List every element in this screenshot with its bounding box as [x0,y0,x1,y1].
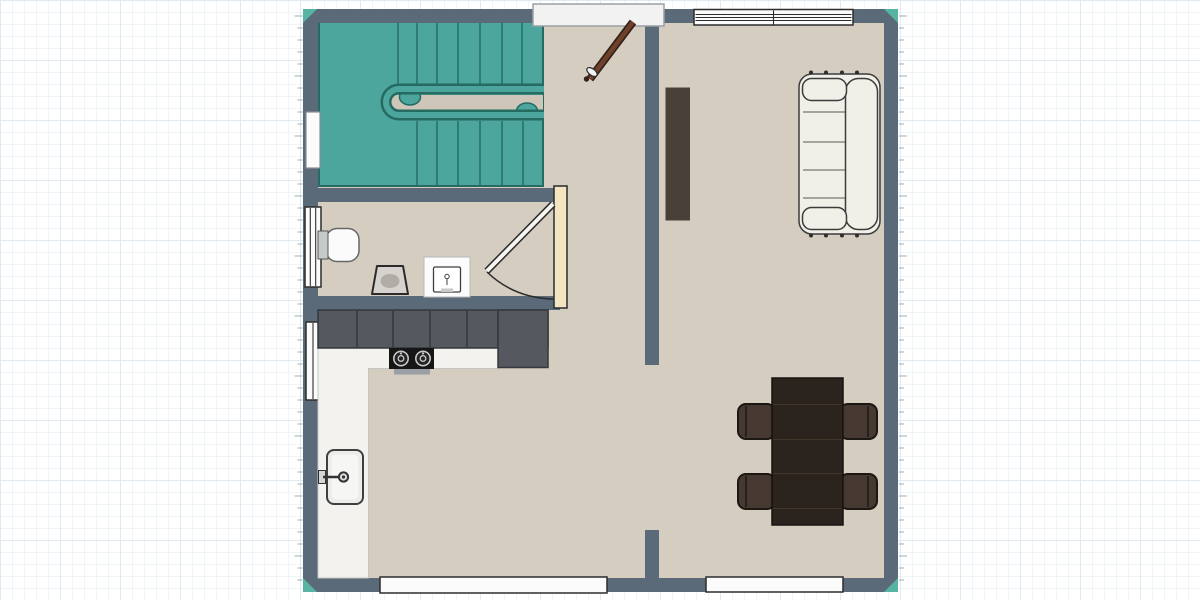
bottom-left-window[interactable] [380,577,607,593]
dining-chair[interactable] [840,404,877,439]
sofa-backrest [846,79,878,230]
floorplan-canvas [0,0,1200,600]
sofa-foot [824,71,828,75]
sofa-foot [809,71,813,75]
sofa-armrest-top [803,79,847,101]
sofa-foot [855,234,859,238]
sofa-foot [809,234,813,238]
sofa-armrest-bottom [803,208,847,230]
burner-knob [422,352,424,354]
cooktop[interactable] [389,348,434,375]
toilet-tank [318,231,328,259]
washbasin-label [441,289,453,293]
floor-plan-svg [0,0,1200,600]
entry-door-threshold [533,4,664,26]
wall-hall-living[interactable] [645,23,659,365]
sofa[interactable] [799,71,880,238]
cooktop-handle [394,369,430,375]
wall-hung-toilet[interactable] [318,229,359,262]
wall-bottom-stub[interactable] [645,530,659,578]
dining-chair[interactable] [738,474,775,509]
sofa-foot [855,71,859,75]
stairwell-window[interactable] [306,112,320,168]
media-sideboard[interactable] [666,88,691,221]
door-handle-knob [584,76,589,81]
dining-chair[interactable] [840,474,877,509]
dining-table[interactable] [772,378,843,525]
sofa-foot [840,71,844,75]
wall-bathroom-kitchen[interactable] [303,296,560,310]
faucet-center [342,475,345,478]
toilet-bowl [326,229,359,262]
tall-cabinet[interactable] [498,310,548,368]
sofa-foot [824,234,828,238]
washbasin[interactable] [424,257,470,297]
staircase[interactable] [319,20,544,186]
wall-right[interactable] [884,9,898,592]
bottom-right-window[interactable] [706,577,843,592]
ruler-left [295,16,303,580]
ruler-right [899,16,907,580]
toilet-seat [381,274,400,288]
top-right-window[interactable] [694,10,853,26]
wall-stairs-bathroom[interactable] [303,188,554,202]
bathroom-door-slab [554,186,567,308]
toilet[interactable] [372,266,408,294]
burner-knob [400,352,402,354]
sofa-foot [840,234,844,238]
dining-chair[interactable] [738,404,775,439]
